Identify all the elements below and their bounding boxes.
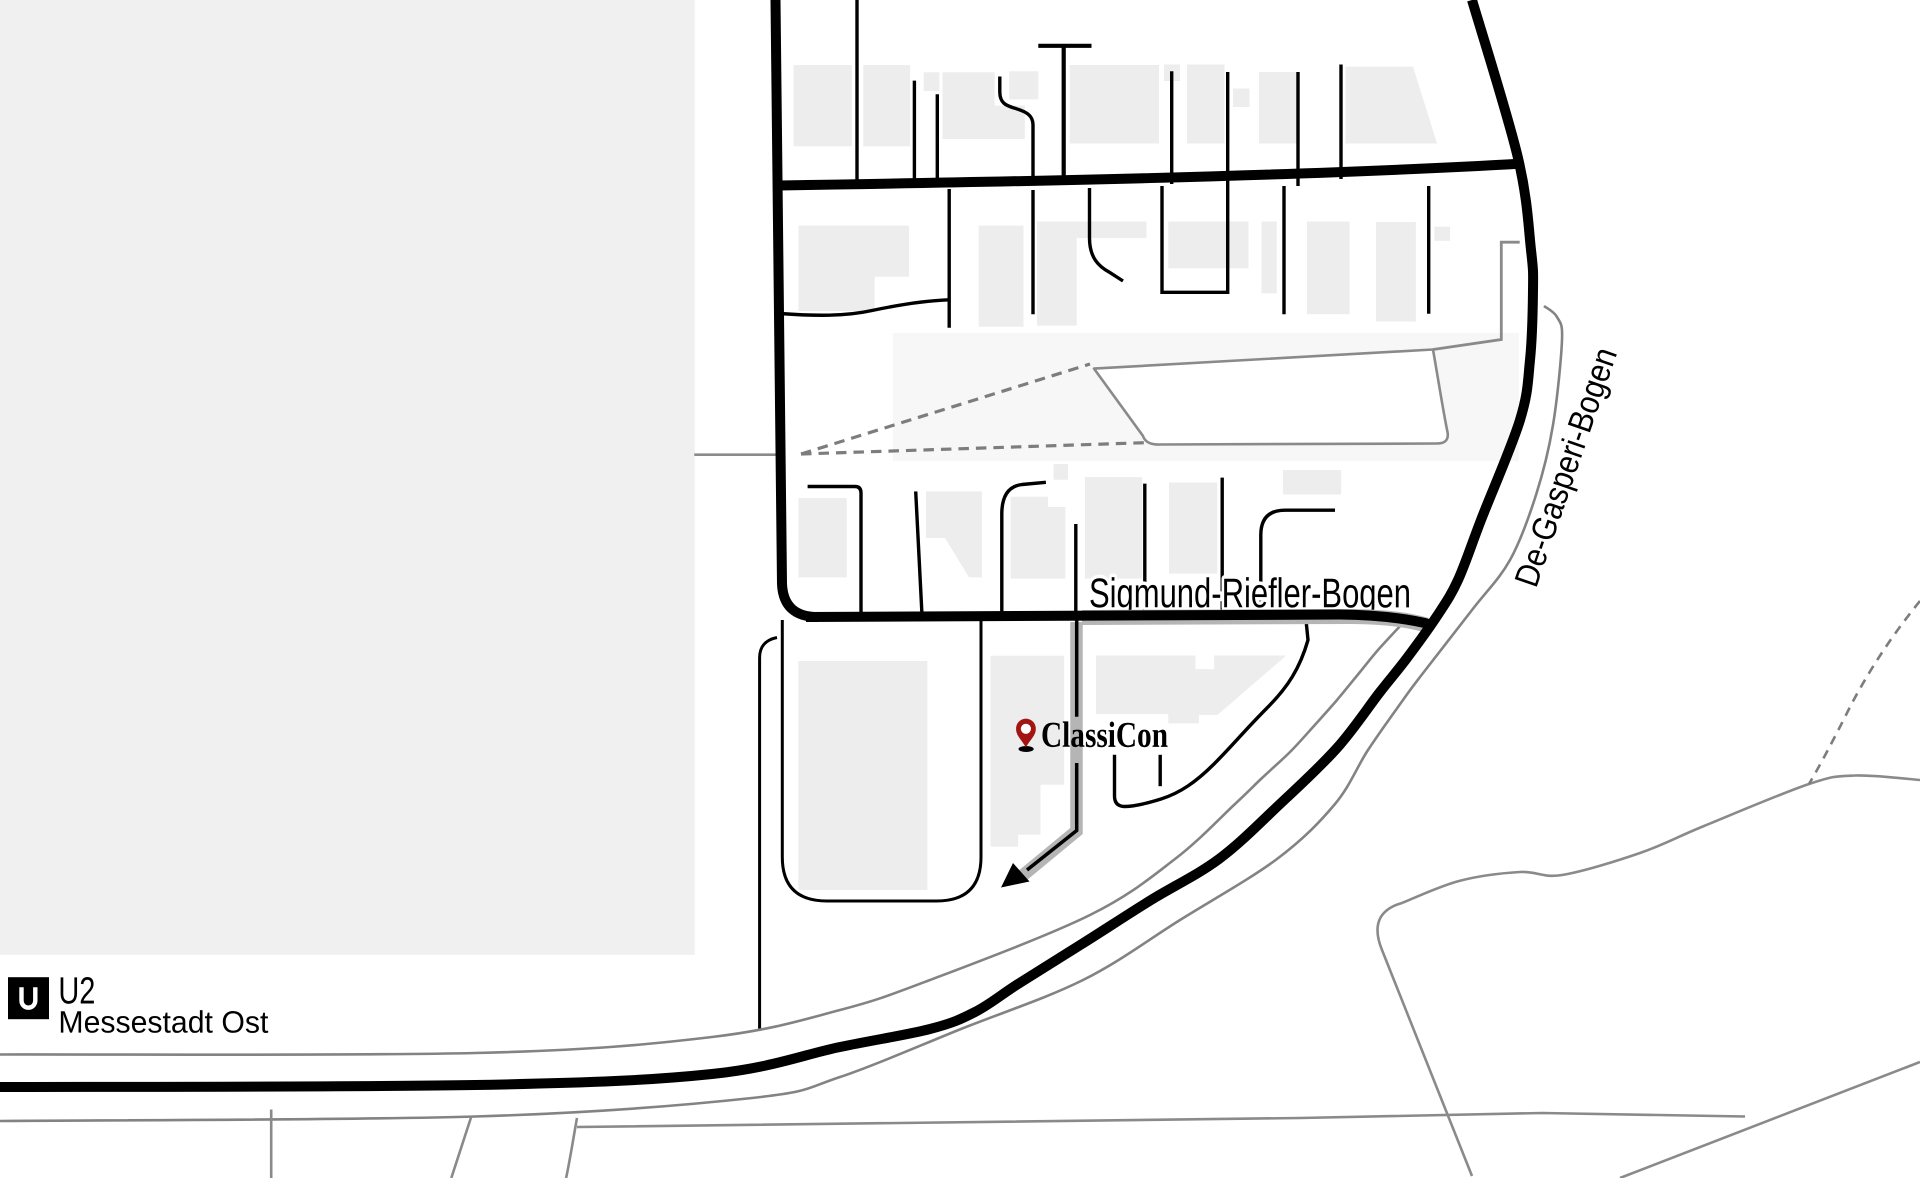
svg-text:ClassiCon: ClassiCon [1041,714,1168,755]
svg-text:Messestadt Ost: Messestadt Ost [58,1005,268,1040]
